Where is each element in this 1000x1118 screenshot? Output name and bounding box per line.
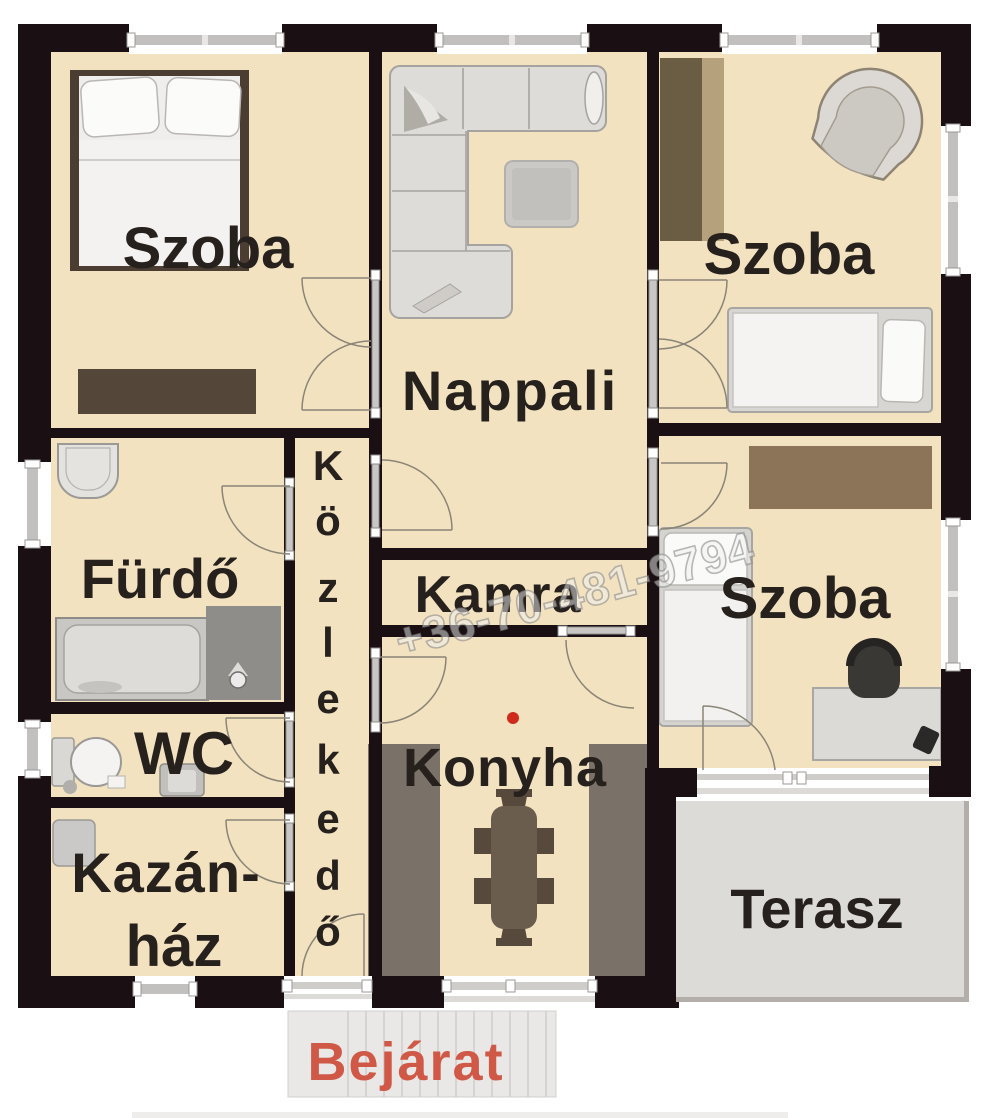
svg-text:WC: WC (134, 720, 234, 787)
svg-text:d: d (315, 852, 341, 899)
svg-text:Szoba: Szoba (720, 566, 892, 631)
svg-text:Fürdő: Fürdő (81, 547, 240, 610)
svg-text:ház: ház (126, 914, 223, 979)
svg-text:Bejárat: Bejárat (307, 1032, 504, 1092)
svg-text:K: K (313, 442, 343, 489)
svg-text:Szoba: Szoba (704, 222, 876, 287)
svg-text:Szoba: Szoba (123, 216, 295, 281)
svg-text:e: e (316, 795, 339, 842)
svg-text:Terasz: Terasz (730, 877, 903, 940)
svg-text:l: l (322, 619, 334, 666)
svg-text:z: z (318, 564, 339, 611)
svg-text:k: k (316, 736, 340, 783)
svg-text:Nappali: Nappali (402, 359, 618, 422)
svg-text:e: e (316, 675, 339, 722)
svg-text:Konyha: Konyha (403, 738, 607, 798)
svg-text:ö: ö (315, 497, 341, 544)
svg-text:ő: ő (315, 908, 341, 955)
svg-text:Kazán-: Kazán- (71, 841, 261, 904)
